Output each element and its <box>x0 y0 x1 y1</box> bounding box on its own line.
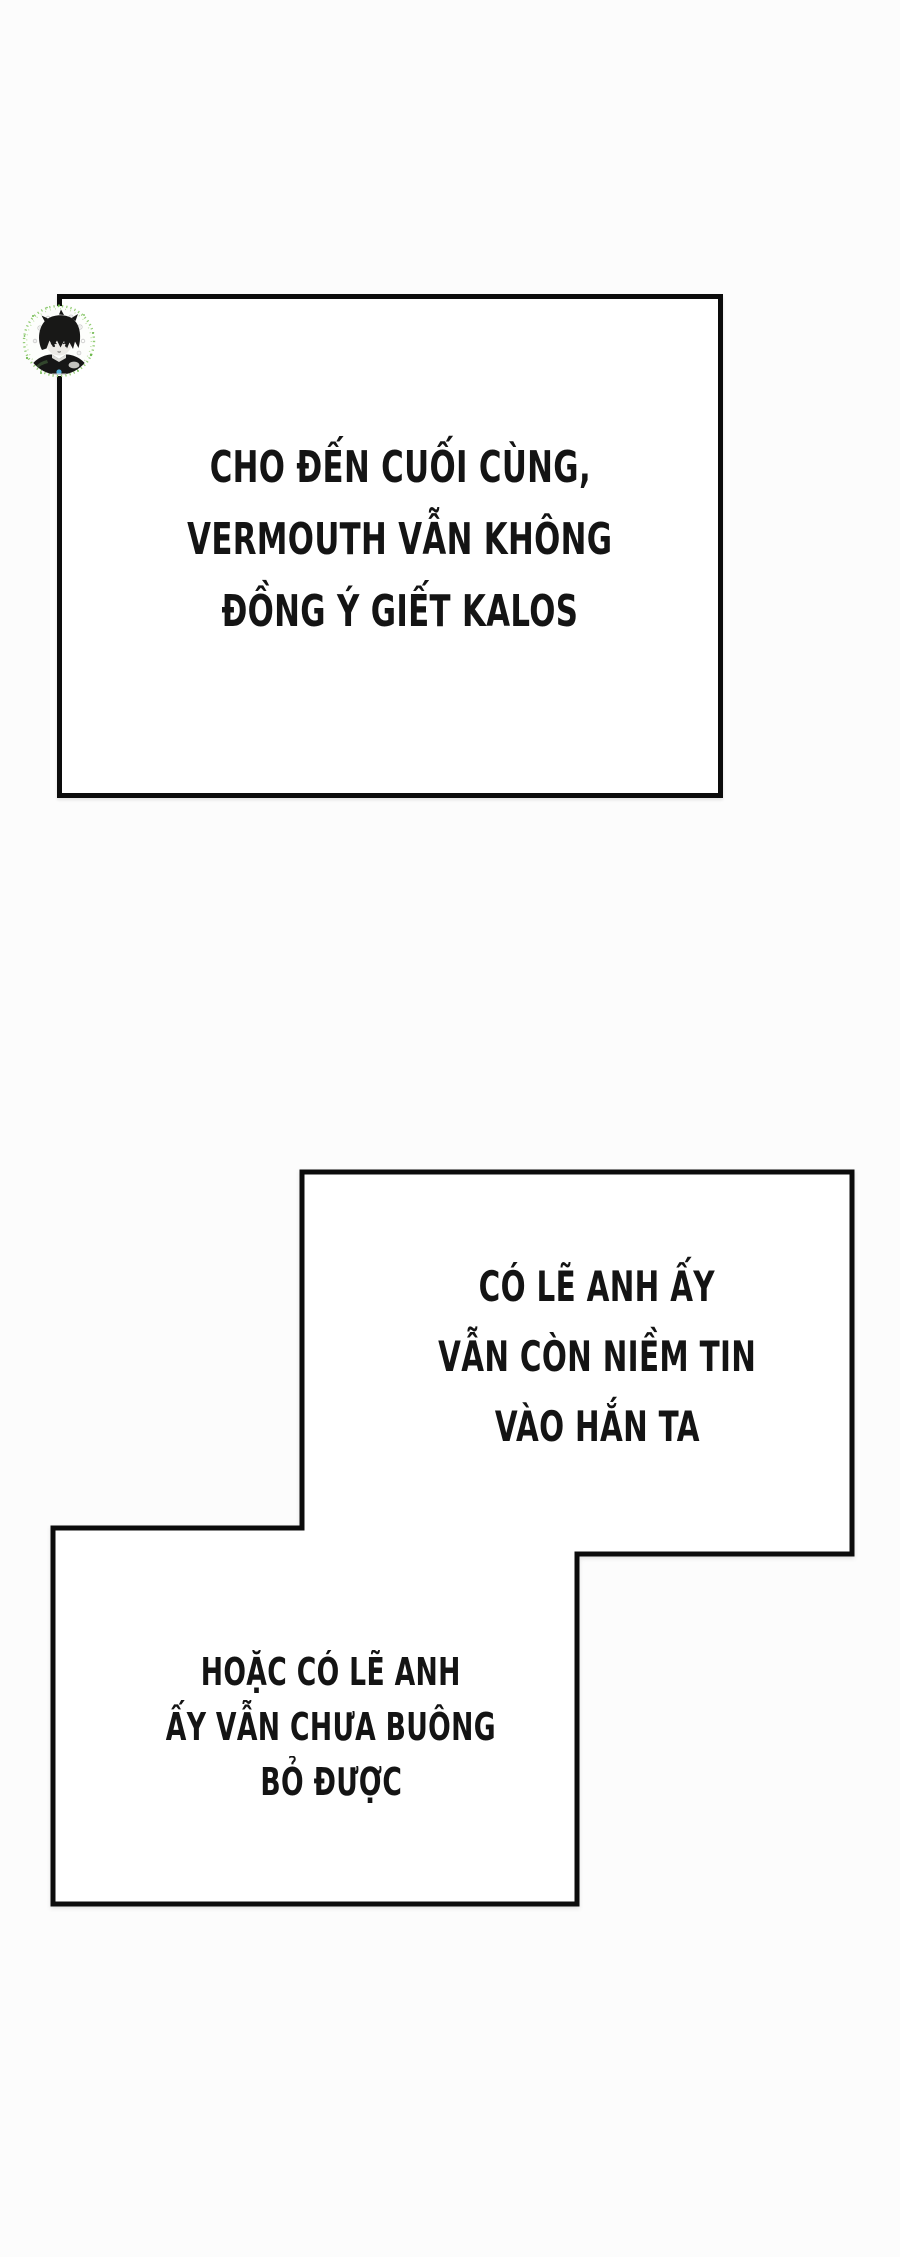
caption-text-upper-right: CÓ LẼ ANH ẤY VẪN CÒN NIỀM TIN VÀO HẮN TA <box>322 1252 872 1462</box>
chibi-boy-avatar-icon <box>21 303 97 379</box>
caption-line: VÀO HẮN TA <box>495 1392 700 1462</box>
caption-line: ẤY VẪN CHƯA BUÔNG <box>166 1700 496 1755</box>
caption-line: VẪN CÒN NIỀM TIN <box>438 1322 756 1392</box>
caption-text-top: CHO ĐẾN CUỐI CÙNG, VERMOUTH VẪN KHÔNG ĐỒ… <box>67 432 733 648</box>
caption-line: CÓ LẼ ANH ẤY <box>479 1252 715 1322</box>
caption-line: BỎ ĐƯỢC <box>260 1755 402 1810</box>
caption-line: HOẶC CÓ LẼ ANH <box>201 1645 461 1700</box>
caption-text-lower-left: HOẶC CÓ LẼ ANH ẤY VẪN CHƯA BUÔNG BỎ ĐƯỢC <box>69 1645 593 1810</box>
caption-line: ĐỒNG Ý GIẾT KALOS <box>222 576 579 648</box>
character-avatar-sticker <box>21 303 97 379</box>
caption-line: CHO ĐẾN CUỐI CÙNG, <box>209 432 590 504</box>
caption-line: VERMOUTH VẪN KHÔNG <box>187 504 612 576</box>
comic-page: CHO ĐẾN CUỐI CÙNG, VERMOUTH VẪN KHÔNG ĐỒ… <box>0 0 900 2257</box>
